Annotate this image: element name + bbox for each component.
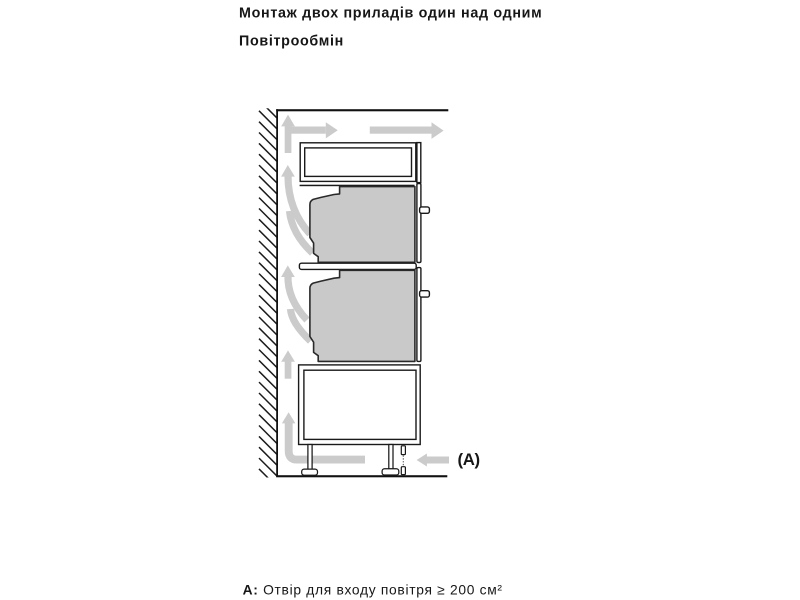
svg-text:А: Отвір для входу повітря ≥ 2: А: Отвір для входу повітря ≥ 200 см²	[243, 583, 503, 598]
svg-text:Повітрообмін: Повітрообмін	[239, 34, 344, 50]
svg-text:(А): (А)	[458, 450, 480, 469]
svg-text:Монтаж двох приладів один над: Монтаж двох приладів один над одним	[239, 6, 542, 22]
